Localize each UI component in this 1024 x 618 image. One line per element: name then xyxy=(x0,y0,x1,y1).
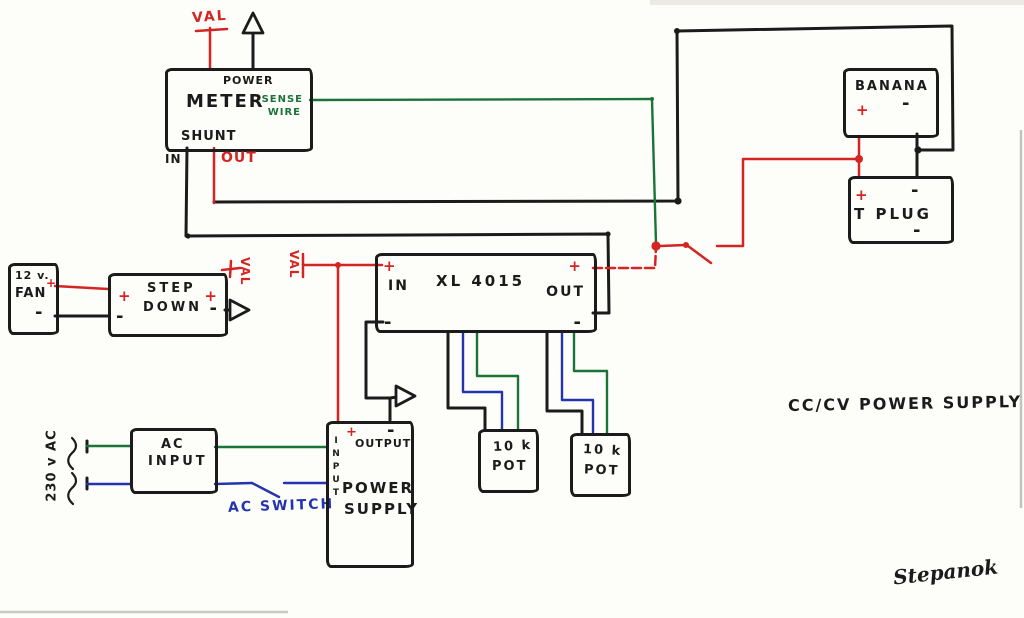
scan-edge-top xyxy=(650,0,1024,5)
tplug-minus-top: - xyxy=(911,186,918,196)
banana-box: BANANA + - xyxy=(843,68,939,138)
stepdown-minus-right: - xyxy=(210,304,217,314)
junction-dot xyxy=(605,231,610,236)
xl-out-minus: - xyxy=(574,318,581,328)
stepdown-label-1: STEP xyxy=(147,281,196,296)
psu-input-label: INPUT xyxy=(331,436,341,501)
wire-ac-blue-right xyxy=(215,483,252,484)
junction-dot-green xyxy=(650,97,654,101)
junction-dot xyxy=(185,233,190,238)
val-label-xl: VAL xyxy=(287,250,301,280)
ac-input-label-1: AC xyxy=(161,437,185,452)
switch-pivot-dot xyxy=(683,242,689,248)
stepdown-box: + STEP DOWN + - - xyxy=(108,273,228,337)
ac-source-label: 230 v AC xyxy=(45,418,60,514)
fan-label: FAN xyxy=(15,286,46,301)
xl-in-label: IN xyxy=(388,278,409,294)
stepdown-plus-left: + xyxy=(118,287,131,305)
tplug-minus-bottom: - xyxy=(913,226,920,236)
wire-pot1-black xyxy=(448,332,485,429)
stepdown-minus-left: - xyxy=(116,312,123,322)
psu-label-1: POWER xyxy=(342,479,414,497)
arrow-right-icon xyxy=(230,300,249,320)
val-label-meter: VAL xyxy=(191,8,228,26)
ac-squiggle-icon xyxy=(68,473,76,504)
banana-minus: - xyxy=(902,99,909,109)
output-switch-blade xyxy=(688,246,711,263)
xl-in-plus: + xyxy=(383,257,396,275)
fan-minus: - xyxy=(35,308,42,318)
wire-to-switch xyxy=(660,245,685,246)
wire-pot2-blue xyxy=(562,332,593,433)
tplug-label: T PLUG xyxy=(854,205,932,223)
ac-input-label-2: INPUT xyxy=(148,454,208,469)
ac-input-box: AC INPUT xyxy=(130,428,218,494)
stepdown-label-2: DOWN xyxy=(143,300,202,315)
arrow-up-icon xyxy=(243,13,263,33)
meter-in-label: IN xyxy=(165,152,182,166)
pot2-value: 10 k xyxy=(583,442,623,459)
tplug-plus: + xyxy=(855,186,868,204)
fan-voltage: 12 v. xyxy=(15,269,50,282)
meter-title: METER xyxy=(186,91,265,112)
wire-xl-out-plus xyxy=(593,247,656,268)
fan-box: 12 v. + FAN - xyxy=(8,263,59,335)
banana-plus: + xyxy=(856,101,869,119)
tplug-box: + - T PLUG - xyxy=(848,176,954,244)
pot1-value: 10 k xyxy=(493,438,533,455)
xl4015-label: XL 4015 xyxy=(436,272,525,290)
psu-output-label: OUTPUT xyxy=(355,437,411,450)
tick-val-meter xyxy=(196,29,227,31)
wire-pot2-green xyxy=(574,332,607,433)
schematic-page: POWER METER SENSE WIRE SHUNT VAL IN OUT … xyxy=(0,0,1024,618)
pot1-label: POT xyxy=(492,459,527,474)
wire-pot2-black xyxy=(547,332,582,433)
meter-sense-label-1: SENSE xyxy=(262,94,303,105)
junction-dot xyxy=(674,197,681,204)
psu-minus: - xyxy=(387,426,394,436)
wire-switch-to-jacks xyxy=(717,159,858,246)
val-label-stepdown: VAL xyxy=(238,257,252,287)
banana-label: BANANA xyxy=(855,79,929,94)
junction-dot-red xyxy=(335,262,341,268)
ac-squiggle-icon xyxy=(68,438,76,469)
xl-out-label: OUT xyxy=(546,284,585,300)
wire-pot1-blue xyxy=(463,332,502,429)
meter-power-label: POWER xyxy=(223,74,274,87)
meter-out-label: OUT xyxy=(221,150,257,166)
wire-pot1-green xyxy=(477,332,518,429)
wire-sense xyxy=(310,99,656,244)
fan-plus: + xyxy=(46,276,56,290)
xl4015-box: + IN XL 4015 OUT + - - xyxy=(375,253,597,333)
pot2-label: POT xyxy=(584,462,620,478)
meter-sense-label-2: WIRE xyxy=(268,107,301,118)
pot2-box: 10 k POT xyxy=(570,433,631,497)
meter-box: POWER METER SENSE WIRE SHUNT xyxy=(165,68,313,152)
meter-shunt-label: SHUNT xyxy=(181,129,237,144)
arrow-right-icon xyxy=(396,386,415,406)
junction-dot-red xyxy=(855,155,863,163)
wire-fan-plus xyxy=(55,286,108,289)
wire-xl-in-minus-to-psu-minus xyxy=(366,322,390,420)
junction-dot xyxy=(914,146,921,153)
power-supply-box: INPUT + - OUTPUT POWER SUPPLY xyxy=(326,421,414,568)
junction-dot xyxy=(674,28,680,34)
xl-in-minus: - xyxy=(384,318,391,328)
pot1-box: 10 k POT xyxy=(478,429,539,493)
junction-dot-red xyxy=(651,241,660,250)
ac-switch-blade xyxy=(252,483,279,497)
tick-val-stepdown-v xyxy=(230,261,231,277)
xl-out-plus: + xyxy=(568,257,581,275)
psu-label-2: SUPPLY xyxy=(344,500,419,518)
